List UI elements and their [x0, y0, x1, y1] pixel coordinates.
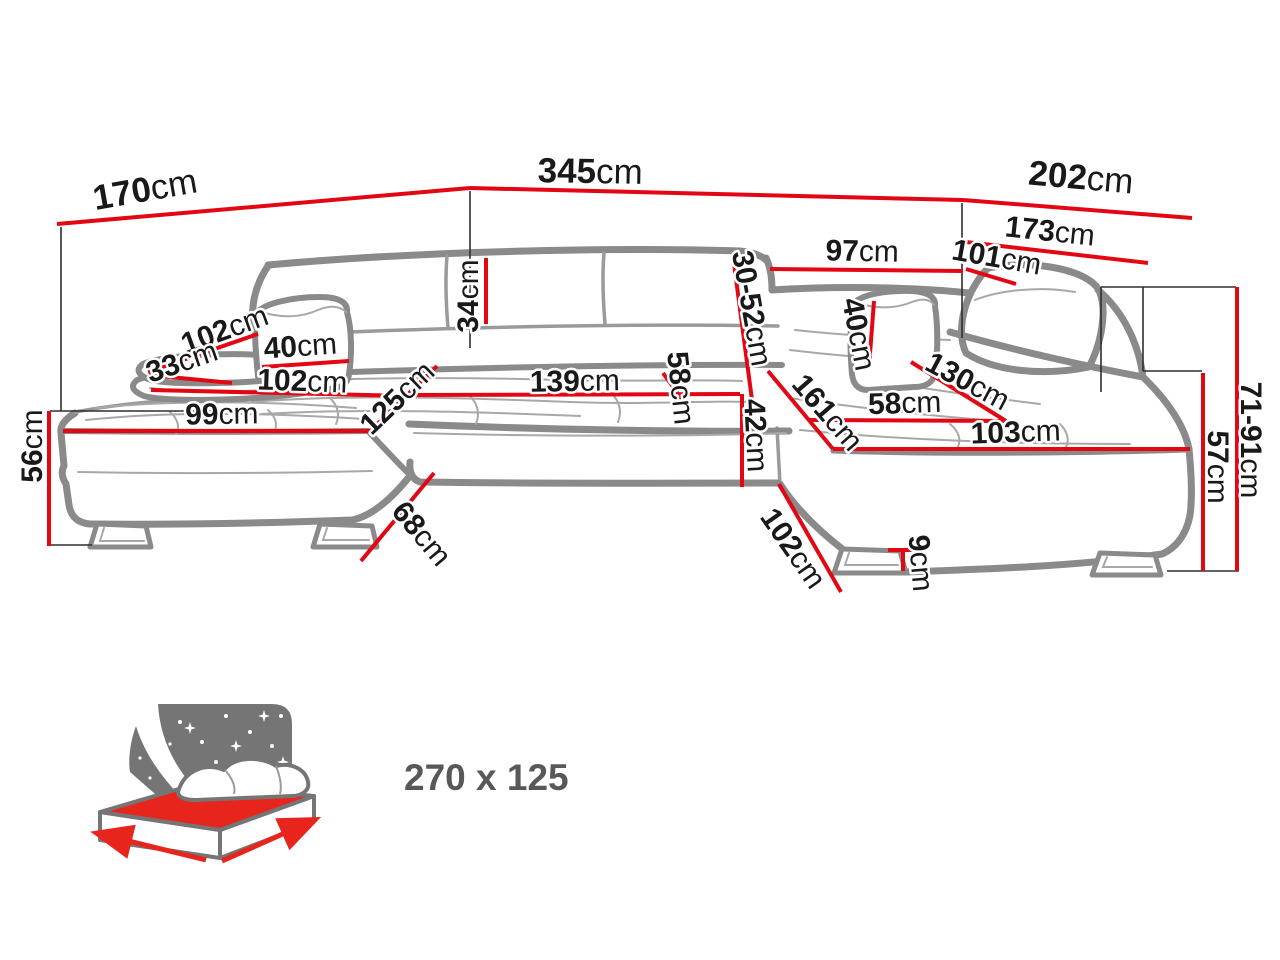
dim-label-left-depth: 170cm — [90, 161, 200, 218]
leg-front-left — [90, 524, 151, 547]
dim-label-left-front-length: 99cm — [185, 397, 259, 431]
dim-label-total-height: 71-91cm — [1234, 382, 1267, 499]
dim-unit: cm — [664, 383, 701, 426]
dim-unit: cm — [147, 161, 200, 208]
backrest-seam-2 — [603, 253, 605, 324]
leg-front-right — [1092, 553, 1161, 575]
dim-label-left-height: 56cm — [16, 409, 49, 482]
leg-left-inner — [313, 524, 377, 547]
dim-unit: cm — [903, 550, 939, 593]
dim-unit: cm — [218, 397, 259, 431]
dim-line-right-depth — [963, 200, 1192, 218]
dim-unit: cm — [999, 242, 1044, 281]
dim-unit: cm — [580, 364, 621, 398]
dim-unit: cm — [739, 431, 774, 473]
dim-value: 102 — [257, 363, 308, 398]
dim-label-total-width: 345cm — [537, 151, 643, 192]
dim-value: 345 — [537, 151, 596, 191]
dim-label-right-depth: 202cm — [1027, 154, 1135, 202]
dim-value: 97 — [825, 234, 859, 268]
sleeping-area-size: 270 x 125 — [404, 757, 569, 798]
dim-value: 58 — [660, 350, 696, 387]
dim-value: 58 — [867, 387, 902, 421]
dim-label-bottom-left-diagonal: 68cm — [385, 495, 457, 572]
dim-unit: cm — [16, 409, 49, 449]
sleeping-function-icon: 270 x 125 — [100, 704, 569, 861]
dim-unit: cm — [1085, 159, 1135, 202]
dim-value: 57 — [1201, 430, 1234, 463]
dim-label-right-seat-length: 103cm — [970, 414, 1061, 450]
dim-label-back-width: 97cm — [825, 234, 899, 268]
dim-label-front-height: 42cm — [737, 398, 774, 473]
dim-value: 34 — [452, 299, 485, 333]
dim-value: 99 — [185, 398, 219, 432]
dim-unit: cm — [1020, 414, 1061, 448]
dim-value: 170 — [90, 169, 154, 218]
dim-unit: cm — [1234, 458, 1267, 498]
dim-label-middle-seat-depth: 58cm — [660, 350, 700, 426]
dim-line-back-width — [770, 269, 963, 271]
sofa-dimension-diagram: 345cm 170cm 202cm 173cm 97cm 101cm 34cm … — [0, 0, 1280, 960]
backrest-seam-1 — [446, 256, 448, 328]
dim-unit: cm — [1201, 464, 1234, 504]
dim-label-seat-height: 57cm — [1201, 430, 1234, 503]
dim-value: 202 — [1027, 154, 1089, 198]
dim-label-backrest-height: 34cm — [452, 259, 485, 332]
dim-value: 42 — [737, 398, 772, 433]
dim-unit: cm — [1053, 216, 1096, 253]
dim-label-middle-seat-width: 139cm — [530, 364, 621, 399]
dim-value: 139 — [530, 365, 581, 399]
dim-label-left-pillow: 40cm — [263, 328, 338, 366]
dim-value: 103 — [970, 416, 1021, 451]
dim-value: 101 — [949, 234, 1004, 275]
leg-right-inner — [834, 549, 906, 573]
dim-value: 40 — [263, 330, 299, 365]
dim-unit: cm — [901, 386, 942, 420]
dim-label-leg-height: 9cm — [902, 533, 940, 592]
dim-label-right-seat-depth: 58cm — [867, 386, 941, 422]
dim-unit: cm — [452, 259, 485, 299]
dim-unit: cm — [738, 324, 777, 369]
diagram-canvas: 345cm 170cm 202cm 173cm 97cm 101cm 34cm … — [0, 0, 1280, 960]
dim-unit: cm — [859, 235, 900, 269]
dim-unit: cm — [596, 152, 643, 192]
dim-value: 56 — [16, 449, 49, 482]
dim-label-left-seat-length: 102cm — [257, 363, 348, 399]
dim-unit: cm — [307, 365, 348, 399]
dim-unit: cm — [296, 328, 338, 364]
dim-value: 71-91 — [1234, 382, 1267, 459]
